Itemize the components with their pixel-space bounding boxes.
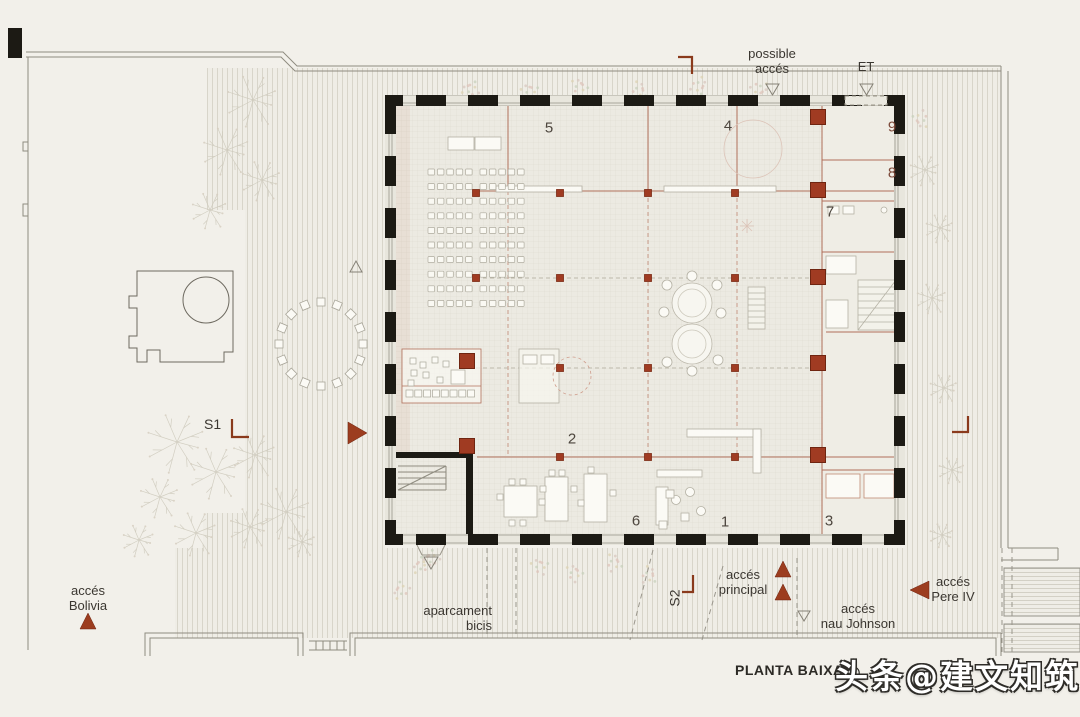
column-marker: [473, 275, 480, 282]
watermark-text: 头条@建文知筑: [835, 650, 1080, 698]
label-s1: S1: [204, 417, 221, 432]
column-marker: [732, 190, 739, 197]
label-acces-principal: accés principal: [719, 567, 767, 597]
label-acces-bolivia: accés Bolivia: [69, 583, 107, 613]
plan-margin-mark: [8, 28, 22, 58]
column-marker: [732, 275, 739, 282]
room-number-9: 9: [888, 119, 896, 136]
room-number-8: 8: [888, 165, 896, 182]
column-marker-large: [460, 439, 475, 454]
tree-icon: [140, 478, 178, 518]
column-marker: [557, 190, 564, 197]
room-number-1: 1: [721, 514, 729, 531]
column-marker: [732, 365, 739, 372]
tree-icon: [123, 525, 154, 558]
site-plan-drawing: [0, 0, 1080, 717]
column-marker: [473, 190, 480, 197]
column-marker: [557, 275, 564, 282]
label-acces-nau-johnson: accés nau Johnson: [821, 601, 895, 631]
column-marker: [645, 275, 652, 282]
tree-icon: [190, 448, 239, 500]
room-number-6: 6: [632, 513, 640, 530]
column-marker: [557, 454, 564, 461]
annex-building-footprint: [129, 271, 233, 362]
plan-title: PLANTA BAIXA: [735, 662, 844, 678]
room-number-7: 7: [826, 204, 834, 221]
label-s2: S2: [668, 589, 683, 606]
column-marker-large: [811, 110, 826, 125]
label-acces-pere-iv: accés Pere IV: [931, 574, 974, 604]
column-marker: [645, 190, 652, 197]
label-et: ET: [858, 59, 875, 74]
label-possible-acces: possible accés: [748, 46, 796, 76]
column-marker-large: [811, 183, 826, 198]
column-marker-large: [811, 270, 826, 285]
column-marker-large: [460, 354, 475, 369]
room-number-3: 3: [825, 513, 833, 530]
et-dashed-opening: [845, 96, 887, 105]
room-number-5: 5: [545, 120, 553, 137]
column-marker: [645, 454, 652, 461]
column-marker: [557, 365, 564, 372]
column-marker-large: [811, 356, 826, 371]
acces-bolivia-arrow: [80, 613, 96, 629]
label-aparcament-bicis: aparcament bicis: [330, 603, 492, 633]
room-number-4: 4: [724, 118, 732, 135]
column-marker-large: [811, 448, 826, 463]
neighbor-buildings: [1004, 568, 1080, 652]
floor-plan-page: possible accés ET S1 S2 accés Bolivia ap…: [0, 0, 1080, 717]
room-number-2: 2: [568, 431, 576, 448]
column-marker: [645, 365, 652, 372]
column-marker: [732, 454, 739, 461]
